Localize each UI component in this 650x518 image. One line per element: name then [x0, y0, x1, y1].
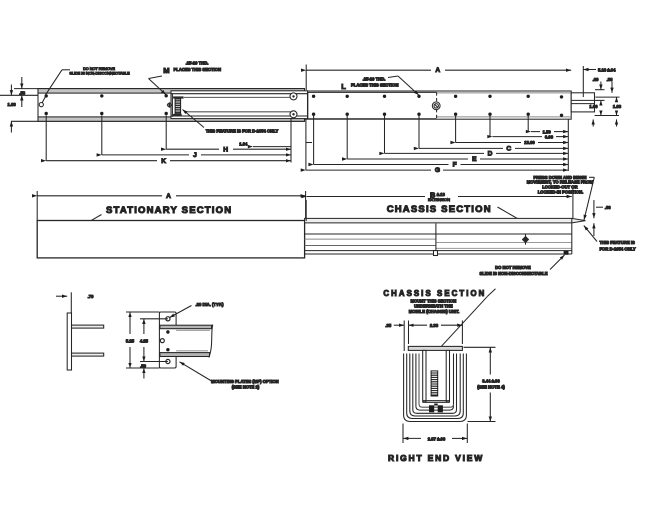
- svg-text:EXTENSION: EXTENSION: [428, 198, 450, 202]
- svg-text:2.87 ±.06: 2.87 ±.06: [428, 437, 446, 442]
- svg-text:6.00: 6.00: [545, 134, 554, 139]
- svg-text:M: M: [163, 66, 169, 75]
- svg-text:1.63: 1.63: [613, 104, 622, 109]
- svg-text:F: F: [453, 162, 457, 169]
- svg-text:.35: .35: [385, 323, 391, 328]
- svg-text:1.63: 1.63: [8, 102, 17, 107]
- svg-text:.25-20 THD.: .25-20 THD.: [186, 61, 209, 66]
- svg-text:3.44 ±.06: 3.44 ±.06: [482, 378, 500, 383]
- svg-text:.53: .53: [19, 91, 25, 96]
- svg-text:±.13: ±.13: [437, 192, 446, 197]
- svg-text:THIS FEATURE IS FOR D-1054 ONL: THIS FEATURE IS FOR D-1054 ONLY: [206, 129, 279, 134]
- svg-text:K: K: [161, 158, 166, 165]
- svg-text:.38: .38: [607, 77, 613, 82]
- svg-text:H: H: [223, 147, 228, 154]
- svg-text:G: G: [435, 167, 440, 174]
- svg-text:1.94: 1.94: [239, 142, 248, 147]
- svg-text:2.38: 2.38: [430, 323, 439, 328]
- svg-text:DO NOT REMOVE SLIDE IS NON-DIS: DO NOT REMOVE SLIDE IS NON-DISCONNECTABL…: [479, 265, 547, 276]
- svg-text:A: A: [435, 67, 440, 74]
- svg-text:.79: .79: [88, 294, 94, 299]
- svg-text:MOUNTING PLATES (MP) OPTION (S: MOUNTING PLATES (MP) OPTION (SEE NOTE 2): [211, 379, 280, 390]
- svg-text:CHASSIS SECTION: CHASSIS SECTION: [383, 289, 486, 298]
- svg-text:THIS FEATURE IS FOR D-1054 ONL: THIS FEATURE IS FOR D-1054 ONLY: [600, 240, 636, 251]
- svg-text:(SEE NOTE 4): (SEE NOTE 4): [477, 385, 505, 390]
- svg-text:D: D: [488, 151, 493, 158]
- svg-text:PLACES THIS SECTION: PLACES THIS SECTION: [174, 67, 221, 72]
- svg-text:E: E: [472, 156, 477, 163]
- svg-text:.28 DIA. (TYP.): .28 DIA. (TYP.): [195, 302, 224, 307]
- svg-text:4.25: 4.25: [140, 339, 149, 344]
- svg-text:J: J: [193, 152, 197, 159]
- svg-text:13.00: 13.00: [524, 140, 535, 145]
- svg-text:.50: .50: [140, 363, 146, 368]
- svg-text:STATIONARY SECTION: STATIONARY SECTION: [106, 205, 232, 216]
- svg-text:L: L: [341, 82, 346, 91]
- svg-text:PLACES THIS SECTION: PLACES THIS SECTION: [351, 82, 398, 87]
- svg-text:5.25: 5.25: [126, 339, 135, 344]
- svg-text:PRESS DOWN AND BEGIN MOVEMENT,: PRESS DOWN AND BEGIN MOVEMENT, TO RELEAS…: [527, 175, 594, 195]
- svg-text:A: A: [166, 193, 171, 200]
- svg-text:C: C: [506, 146, 511, 153]
- svg-text:.06: .06: [605, 205, 611, 210]
- svg-text:CHASSIS SECTION: CHASSIS SECTION: [387, 204, 492, 215]
- svg-text:DO NOT REMOVE SLIDE IS NON-DIS: DO NOT REMOVE SLIDE IS NON-DISCONNECTABL…: [69, 67, 130, 76]
- svg-text:MOUNT THIS SECTION UNDERNEATH: MOUNT THIS SECTION UNDERNEATH THE MOBILE…: [409, 299, 459, 314]
- svg-text:.25-20 THD.: .25-20 THD.: [363, 77, 386, 82]
- svg-text:5.16 ±.04: 5.16 ±.04: [598, 67, 616, 72]
- svg-text:RIGHT END VIEW: RIGHT END VIEW: [388, 453, 484, 463]
- svg-text:1.00: 1.00: [589, 104, 598, 109]
- svg-text:.69: .69: [593, 77, 599, 82]
